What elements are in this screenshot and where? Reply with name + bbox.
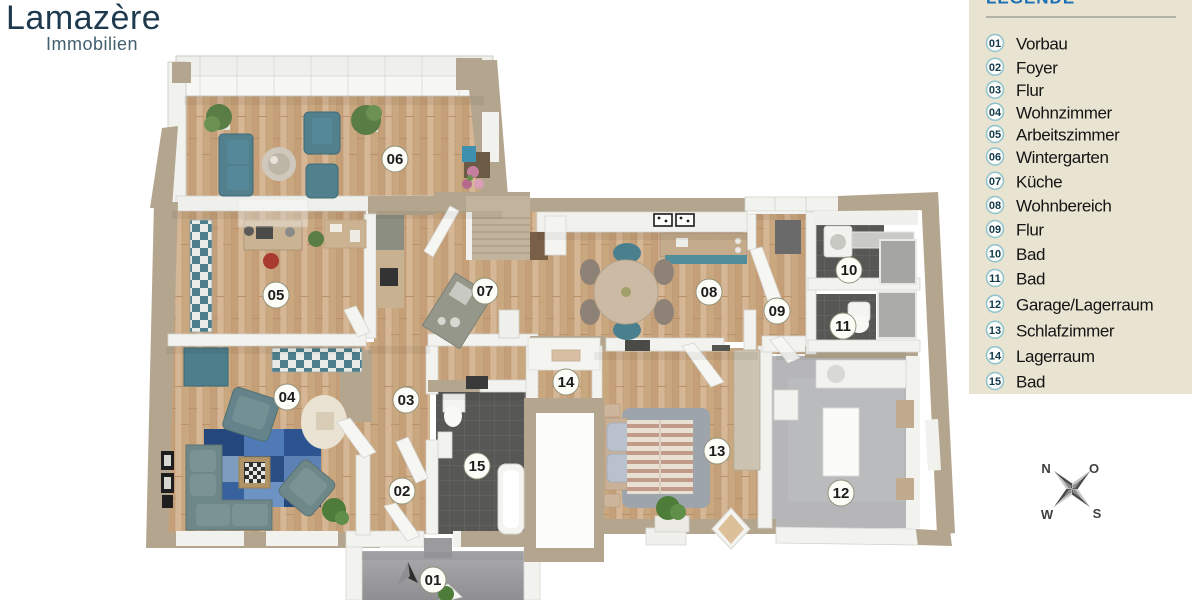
- svg-text:14: 14: [989, 350, 1002, 362]
- svg-text:13: 13: [709, 443, 726, 460]
- svg-text:08: 08: [701, 284, 718, 301]
- svg-text:Garage/Lagerraum: Garage/Lagerraum: [1016, 295, 1153, 314]
- svg-text:03: 03: [398, 392, 415, 409]
- svg-text:09: 09: [769, 303, 786, 320]
- svg-text:11: 11: [989, 273, 1001, 285]
- svg-text:02: 02: [989, 62, 1001, 74]
- svg-text:09: 09: [989, 224, 1001, 236]
- svg-text:Schlafzimmer: Schlafzimmer: [1016, 321, 1115, 340]
- svg-text:Vorbau: Vorbau: [1016, 35, 1067, 54]
- svg-text:11: 11: [835, 318, 851, 335]
- svg-text:Bad: Bad: [1016, 270, 1045, 289]
- svg-text:LEGENDE: LEGENDE: [986, 0, 1075, 8]
- svg-text:12: 12: [833, 485, 850, 502]
- svg-text:Flur: Flur: [1016, 221, 1044, 240]
- svg-text:Arbeitszimmer: Arbeitszimmer: [1016, 126, 1120, 145]
- svg-text:Immobilien: Immobilien: [46, 34, 138, 54]
- svg-text:04: 04: [279, 389, 296, 406]
- svg-text:05: 05: [989, 129, 1001, 141]
- svg-text:W: W: [1041, 507, 1054, 522]
- svg-text:12: 12: [989, 299, 1001, 311]
- svg-text:Wohnzimmer: Wohnzimmer: [1016, 103, 1113, 122]
- svg-text:14: 14: [558, 374, 575, 391]
- svg-text:Flur: Flur: [1016, 81, 1044, 100]
- svg-text:05: 05: [268, 287, 285, 304]
- svg-text:07: 07: [477, 283, 494, 300]
- svg-text:06: 06: [387, 151, 404, 168]
- svg-text:Lamazère: Lamazère: [6, 0, 161, 37]
- svg-text:13: 13: [989, 325, 1001, 337]
- svg-text:04: 04: [989, 107, 1002, 119]
- svg-text:Wohnbereich: Wohnbereich: [1016, 197, 1111, 216]
- svg-text:10: 10: [989, 248, 1001, 260]
- svg-text:Lagerraum: Lagerraum: [1016, 347, 1095, 366]
- svg-text:S: S: [1093, 506, 1102, 521]
- svg-text:N: N: [1041, 461, 1050, 476]
- svg-text:06: 06: [989, 152, 1001, 164]
- svg-text:Bad: Bad: [1016, 245, 1045, 264]
- svg-text:O: O: [1089, 461, 1099, 476]
- svg-text:10: 10: [841, 262, 858, 279]
- svg-text:Küche: Küche: [1016, 172, 1062, 191]
- svg-text:08: 08: [989, 200, 1001, 212]
- svg-text:02: 02: [394, 483, 411, 500]
- svg-text:01: 01: [989, 38, 1001, 50]
- svg-text:01: 01: [425, 572, 442, 589]
- svg-text:07: 07: [989, 176, 1001, 188]
- svg-text:15: 15: [469, 458, 486, 475]
- svg-text:Bad: Bad: [1016, 373, 1045, 392]
- svg-text:Foyer: Foyer: [1016, 58, 1058, 77]
- svg-text:15: 15: [989, 376, 1001, 388]
- svg-text:03: 03: [989, 85, 1001, 97]
- svg-text:Wintergarten: Wintergarten: [1016, 148, 1109, 167]
